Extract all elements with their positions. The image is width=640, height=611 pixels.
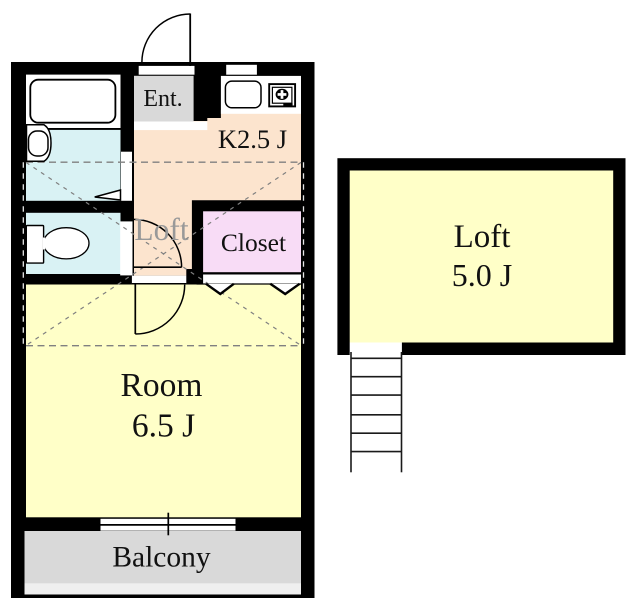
svg-text:Loft: Loft: [134, 212, 188, 247]
svg-text:K2.5 J: K2.5 J: [218, 124, 287, 154]
svg-text:6.5 J: 6.5 J: [132, 408, 195, 445]
svg-text:Balcony: Balcony: [112, 542, 211, 574]
svg-text:5.0 J: 5.0 J: [452, 257, 512, 293]
svg-text:Loft: Loft: [454, 219, 511, 255]
svg-text:Ent.: Ent.: [143, 86, 182, 112]
svg-text:Room: Room: [121, 367, 203, 404]
svg-text:Closet: Closet: [221, 228, 286, 257]
